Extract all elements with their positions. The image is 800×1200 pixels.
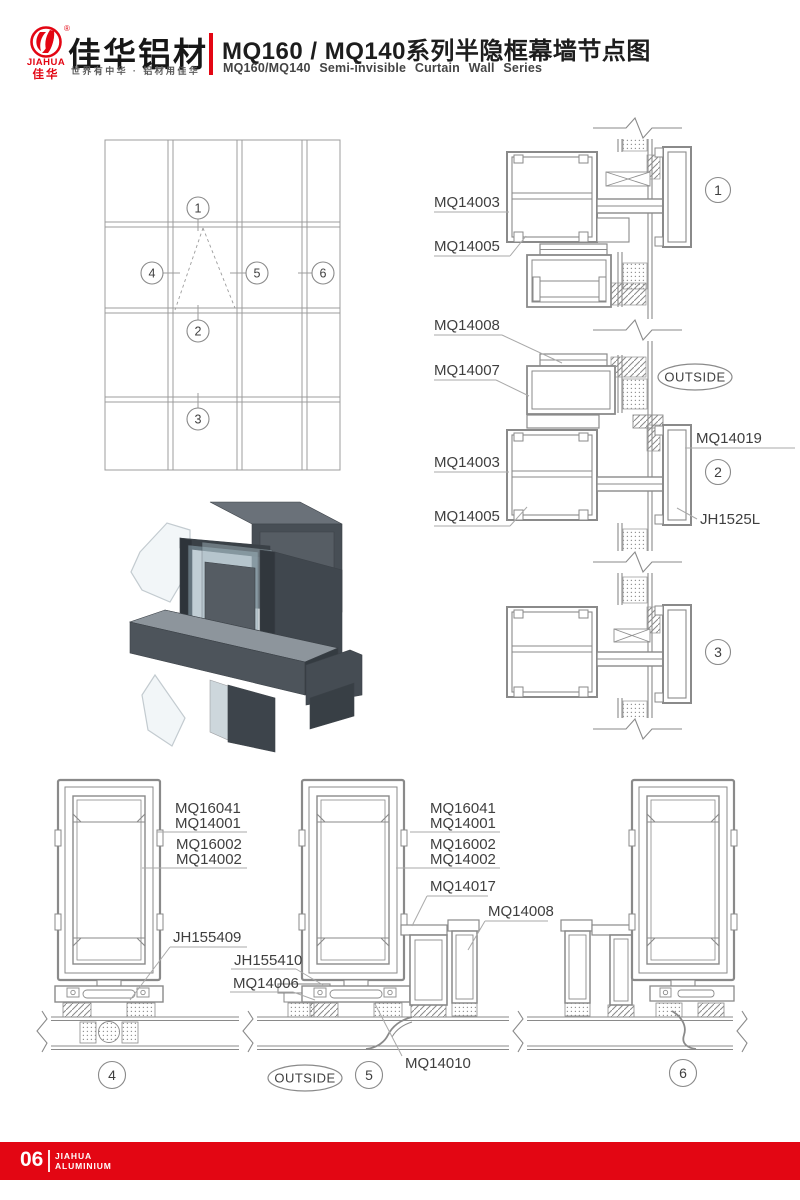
callout-3: 3	[714, 644, 722, 660]
catalog-page: ® JIAHUA 佳华 佳华铝材 世界有中华 · 铝材用佳华 MQ160 / M…	[0, 0, 800, 1200]
vent-open-symbol	[175, 228, 235, 310]
profile-3d-render	[110, 490, 400, 770]
vertical-section-diagram: MQ14003 MQ14005 MQ14008 MQ14007 MQ14003 …	[430, 115, 800, 740]
brand-slogan: 世界有中华 · 铝材用佳华	[71, 64, 200, 77]
mullion-detail-4	[55, 780, 163, 1043]
glass-band	[38, 1017, 746, 1050]
logo-brand-en: JIAHUA	[27, 57, 65, 68]
part-label: MQ14001	[175, 815, 241, 832]
footer-brand: JIAHUA ALUMINIUM	[55, 1151, 112, 1171]
mullion-detail-6	[561, 780, 737, 1049]
plan-callouts	[99, 1060, 697, 1089]
header-divider	[209, 33, 213, 75]
footer-brand-line1: JIAHUA	[55, 1151, 112, 1161]
part-label: JH155410	[234, 952, 302, 969]
elevation-grid-diagram: 1 2 3 4 5 6	[95, 135, 350, 475]
callout-1: 1	[195, 202, 202, 216]
part-label: MQ14003	[434, 454, 500, 471]
part-label: JH155409	[173, 929, 241, 946]
footer-brand-line2: ALUMINIUM	[55, 1161, 112, 1171]
part-label: MQ14008	[434, 317, 500, 334]
callout-3: 3	[195, 413, 202, 427]
grid-lines	[105, 140, 340, 470]
part-label: MQ14005	[434, 508, 500, 525]
page-title-en: MQ160/MQ140 Semi-invisible Curtain Wall …	[223, 61, 542, 75]
logo-petal-icon	[36, 32, 46, 51]
callout-6: 6	[679, 1065, 687, 1081]
part-label: MQ14010	[405, 1055, 471, 1072]
callout-2: 2	[714, 464, 722, 480]
part-label: MQ14002	[176, 851, 242, 868]
part-label: MQ14006	[233, 975, 299, 992]
section-callouts	[706, 178, 731, 665]
callout-4: 4	[108, 1067, 116, 1083]
part-label: MQ14002	[430, 851, 496, 868]
callout-5: 5	[254, 267, 261, 281]
page-number: 06	[20, 1148, 43, 1172]
page-footer: 06 JIAHUA ALUMINIUM	[0, 1142, 800, 1180]
outside-label: OUTSIDE	[664, 370, 725, 385]
logo-brand-cn: 佳华	[33, 67, 60, 81]
part-label: MQ14017	[430, 878, 496, 895]
callout-4: 4	[149, 267, 156, 281]
transom-detail-1	[507, 147, 691, 247]
part-label: MQ14019	[696, 430, 762, 447]
callout-5: 5	[365, 1067, 373, 1083]
transom-detail-3	[507, 605, 691, 703]
part-label: MQ14003	[434, 194, 500, 211]
plan-section-diagram: MQ16041 MQ14001 MQ16002 MQ14002 JH155409…	[30, 770, 770, 1100]
callout-2: 2	[195, 325, 202, 339]
page-header: ® JIAHUA 佳华 佳华铝材 世界有中华 · 铝材用佳华 MQ160 / M…	[0, 0, 800, 110]
callout-6: 6	[320, 267, 327, 281]
callout-1: 1	[714, 182, 722, 198]
part-label: MQ14005	[434, 238, 500, 255]
transom-detail-2	[507, 415, 691, 525]
part-label: MQ14008	[488, 903, 554, 920]
outside-label: OUTSIDE	[274, 1071, 335, 1086]
part-label: MQ14001	[430, 815, 496, 832]
band-break-symbols	[33, 1011, 751, 1055]
part-label: JH1525L	[700, 511, 760, 528]
footer-divider	[48, 1150, 50, 1172]
part-label: MQ14007	[434, 362, 500, 379]
